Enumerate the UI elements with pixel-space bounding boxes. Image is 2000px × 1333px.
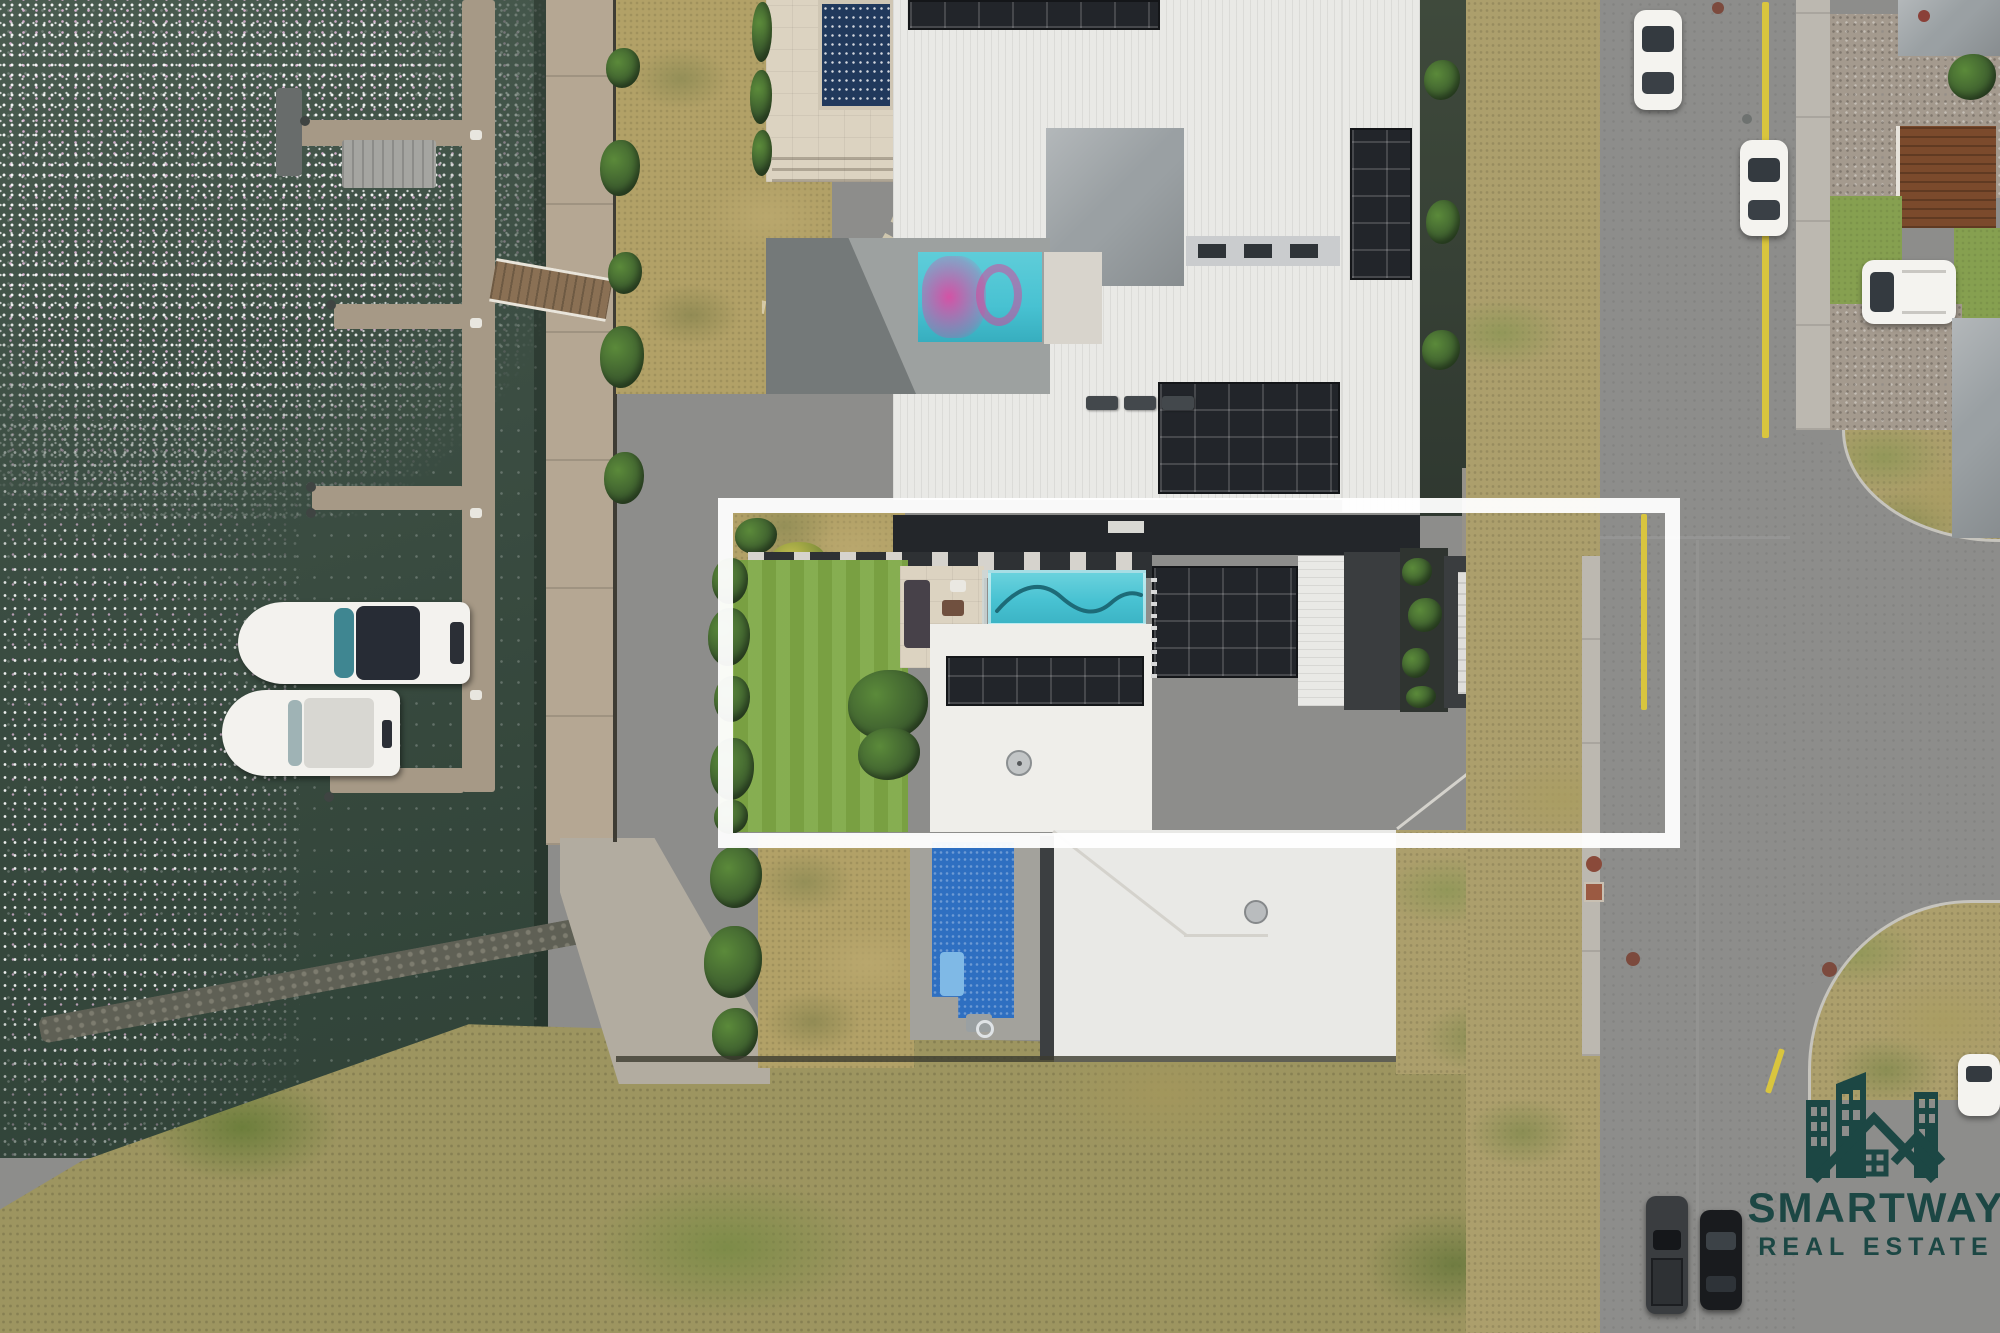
roof-top-right [1898, 0, 2000, 56]
pink-pool-ring [976, 264, 1022, 326]
palm-bottom [710, 846, 762, 908]
mooring-pile [306, 508, 316, 518]
jetty-cleat [470, 130, 482, 140]
building-shadow [766, 238, 916, 394]
tree [1424, 60, 1460, 100]
window [1290, 244, 1318, 258]
fence-bush [604, 452, 644, 504]
property-highlight-outline [718, 498, 1680, 848]
truck-cab-glass [1653, 1230, 1681, 1250]
jetty-cleat [470, 690, 482, 700]
tree [1426, 200, 1460, 244]
car-glass [1748, 200, 1780, 220]
manhole-cover [1712, 2, 1724, 14]
watermark-logo: SMARTWAY REAL ESTATE [1752, 1066, 2000, 1280]
boat-windshield [288, 700, 302, 766]
jetty-arm-3 [312, 486, 464, 510]
manhole-cover [1822, 962, 1837, 977]
pool-with-cover [918, 252, 1042, 342]
side-fence [1040, 836, 1054, 1060]
car-roof-rails [1902, 270, 1946, 314]
car-glass [1706, 1276, 1736, 1292]
car-rear-glass [1642, 72, 1674, 94]
pool-ladder [940, 952, 964, 996]
parked-white-car [1634, 10, 1682, 110]
car-sunroof [1642, 26, 1674, 52]
parked-white-car [1740, 140, 1788, 236]
satellite-dish [1244, 900, 1268, 924]
logo-brand-name: SMARTWAY [1747, 1186, 2000, 1230]
logo-brand-tagline: REAL ESTATE [1758, 1232, 1993, 1262]
side-passage-trees [1420, 0, 1466, 516]
logo-buildings-icon [1796, 1066, 1956, 1186]
mooring-pile [326, 300, 336, 310]
mooring-pile [306, 482, 316, 492]
white-suv-driveway [1862, 260, 1956, 324]
roof-mid-right [1952, 318, 2000, 538]
jetty-cleat [470, 318, 482, 328]
window [1244, 244, 1272, 258]
hip-roof-house-bottom [1054, 830, 1398, 1062]
terrace-steps [772, 150, 912, 182]
aerial-photo: SMARTWAY REAL ESTATE [0, 0, 2000, 1333]
jetty-pile-block [276, 88, 302, 176]
solar-array-top [908, 0, 1160, 30]
jetty-arm-2 [334, 304, 464, 329]
roof-ridge [1184, 934, 1268, 937]
window [1198, 244, 1226, 258]
red-utility-pit [1584, 882, 1604, 902]
manhole-cover [1626, 952, 1640, 966]
car-glass [1706, 1232, 1736, 1250]
parked-black-sedan [1700, 1210, 1742, 1310]
boat-engine [450, 622, 464, 664]
dry-lawn-bottom [758, 836, 914, 1068]
solar-array-strip [1350, 128, 1412, 280]
lap-pool-blue [932, 842, 1014, 1018]
jetty-cleat [470, 508, 482, 518]
mooring-pile [324, 792, 334, 802]
seawall-walkway [546, 0, 616, 845]
sun-lounger [1162, 396, 1194, 410]
road-seam [1696, 540, 1699, 1330]
coiled-hose [976, 1020, 994, 1038]
red-utility-cover [1586, 856, 1602, 872]
sun-lounger [1124, 396, 1156, 410]
moored-boat-2 [222, 690, 400, 776]
timber-deck [1896, 126, 1996, 228]
moored-boat-1 [238, 602, 470, 684]
manhole-cover [1742, 114, 1752, 124]
rear-fence-line [616, 1056, 1396, 1062]
mooring-pile [300, 116, 310, 126]
car-windshield [1870, 272, 1894, 312]
parked-pickup-truck [1646, 1196, 1688, 1314]
pool-pergola [1044, 252, 1102, 344]
boat-canopy [356, 606, 420, 680]
boat-windshield [334, 608, 354, 678]
plunge-pool-navy [818, 0, 894, 110]
boat-deck [304, 698, 374, 768]
floating-dock [342, 140, 436, 188]
boat-engine [382, 720, 392, 748]
water-sparkle-trail [0, 420, 300, 1160]
truck-bed [1651, 1258, 1683, 1306]
house-wall-band [1186, 236, 1340, 266]
car-glass [1748, 158, 1780, 182]
sidewalk-top-right [1796, 0, 1830, 430]
palm-bottom [704, 926, 762, 998]
sun-lounger [1086, 396, 1118, 410]
red-garden-dot [1918, 10, 1930, 22]
tree [1422, 330, 1460, 370]
